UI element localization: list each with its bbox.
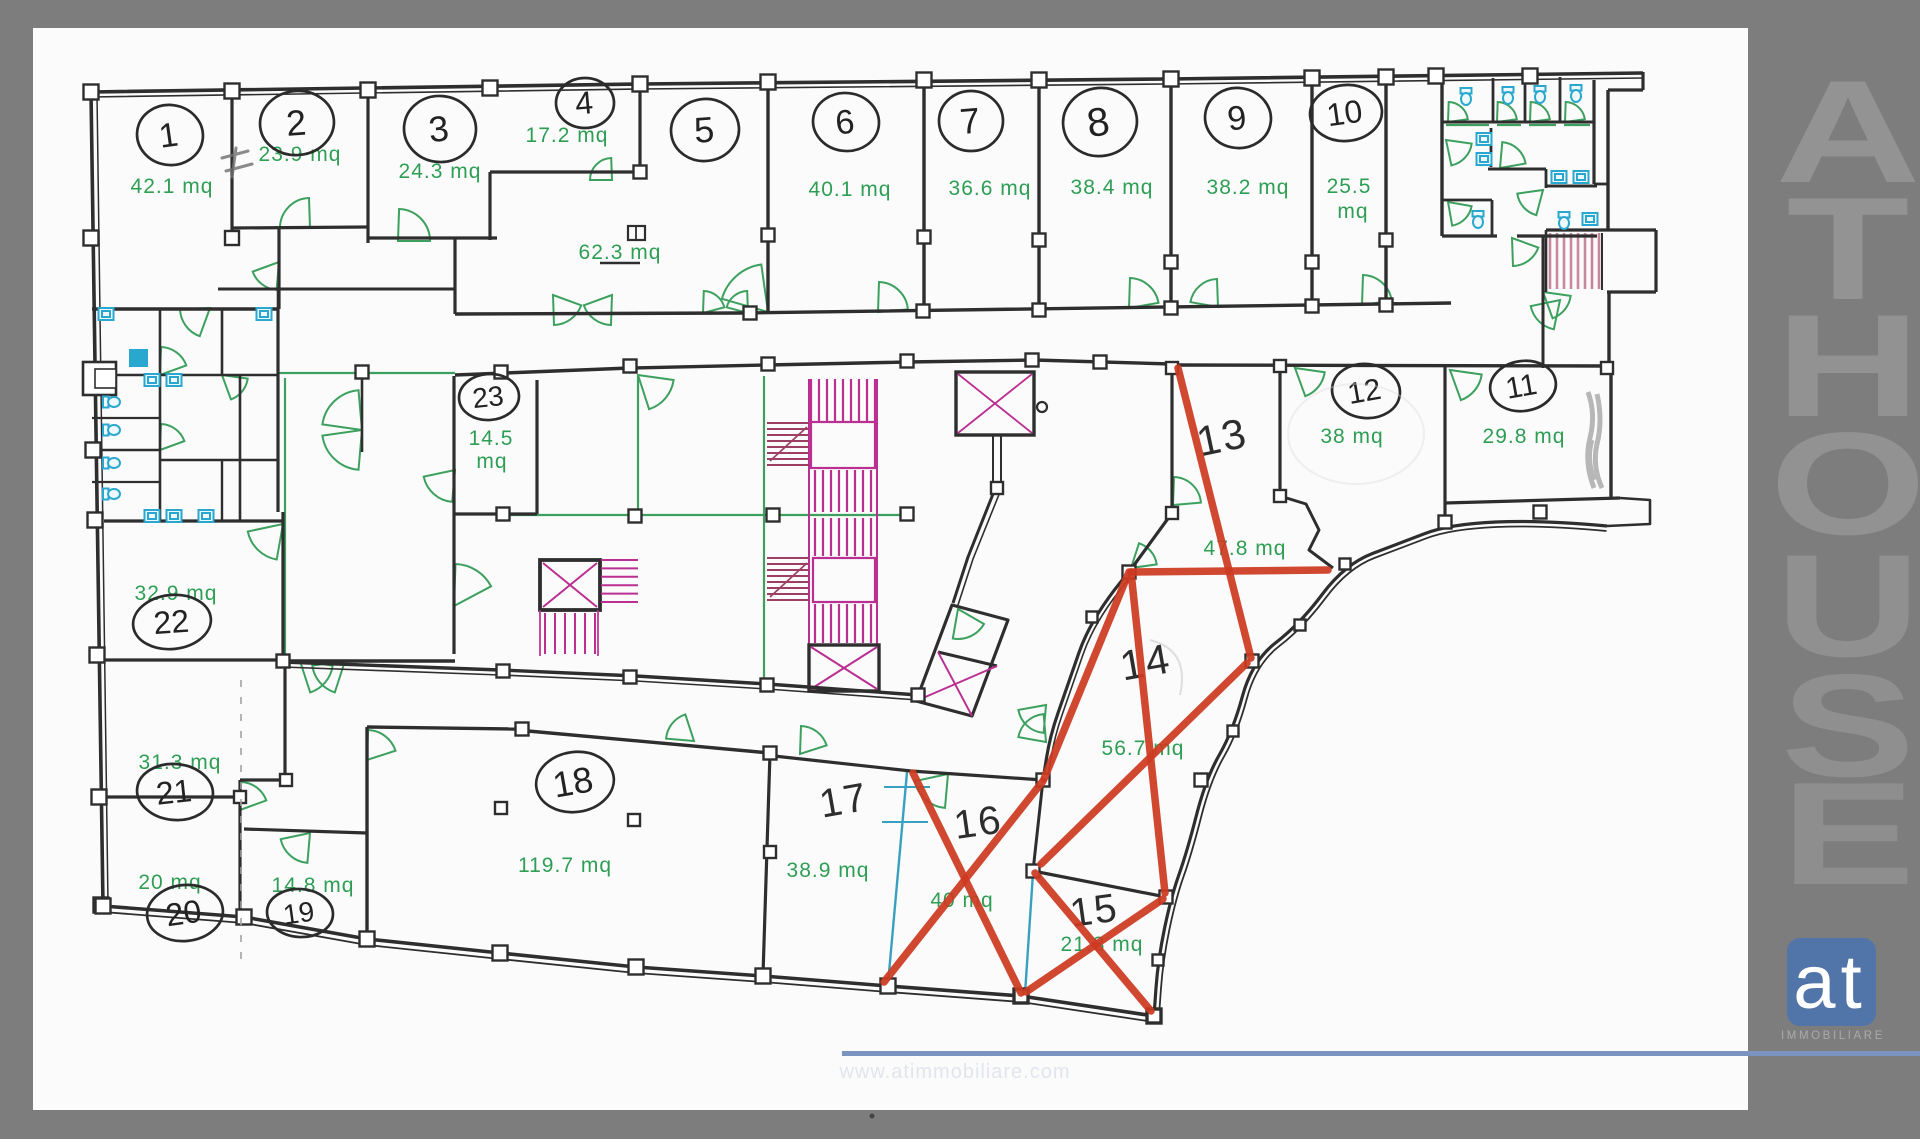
svg-text:38.2 mq: 38.2 mq (1207, 176, 1290, 199)
svg-text:22: 22 (152, 603, 190, 641)
svg-text:2: 2 (285, 102, 308, 144)
svg-text:E: E (1781, 753, 1915, 916)
svg-text:4: 4 (574, 84, 595, 121)
svg-text:47.8 mq: 47.8 mq (1204, 537, 1287, 560)
svg-text:42.1 mq: 42.1 mq (131, 175, 214, 198)
svg-text:10: 10 (1324, 93, 1364, 134)
svg-text:3: 3 (427, 107, 451, 150)
svg-text:11: 11 (1503, 368, 1539, 406)
svg-text:9: 9 (1225, 99, 1248, 139)
svg-text:18: 18 (550, 758, 597, 805)
svg-text:IMMOBILIARE: IMMOBILIARE (1781, 1030, 1885, 1042)
svg-text:38.4 mq: 38.4 mq (1071, 176, 1154, 199)
svg-text:24.3 mq: 24.3 mq (399, 160, 482, 183)
svg-text:21: 21 (154, 772, 193, 812)
svg-text:7: 7 (958, 99, 982, 142)
svg-text:19: 19 (281, 896, 316, 931)
svg-text:mq: mq (476, 450, 507, 473)
svg-text:5: 5 (693, 109, 716, 151)
svg-text:14.8 mq: 14.8 mq (272, 874, 355, 897)
svg-text:62.3 mq: 62.3 mq (579, 241, 662, 264)
svg-text:14.5: 14.5 (469, 427, 514, 450)
svg-text:6: 6 (833, 103, 856, 143)
svg-text:20 mq: 20 mq (138, 871, 201, 894)
svg-text:36.6 mq: 36.6 mq (949, 177, 1032, 200)
svg-text:29.8 mq: 29.8 mq (1483, 425, 1566, 448)
svg-text:www.atimmobiliare.com: www.atimmobiliare.com (838, 1061, 1070, 1083)
svg-text:25.5: 25.5 (1327, 175, 1372, 198)
svg-text:at: at (1793, 940, 1866, 1025)
svg-text:23: 23 (471, 380, 505, 414)
svg-text:38 mq: 38 mq (1320, 425, 1383, 448)
svg-text:17: 17 (816, 775, 871, 827)
svg-text:38.9 mq: 38.9 mq (787, 859, 870, 882)
svg-text:mq: mq (1337, 200, 1368, 223)
svg-text:12: 12 (1345, 373, 1384, 411)
svg-text:119.7 mq: 119.7 mq (518, 854, 612, 877)
svg-text:40.1 mq: 40.1 mq (809, 178, 892, 201)
svg-text:20: 20 (163, 893, 203, 934)
